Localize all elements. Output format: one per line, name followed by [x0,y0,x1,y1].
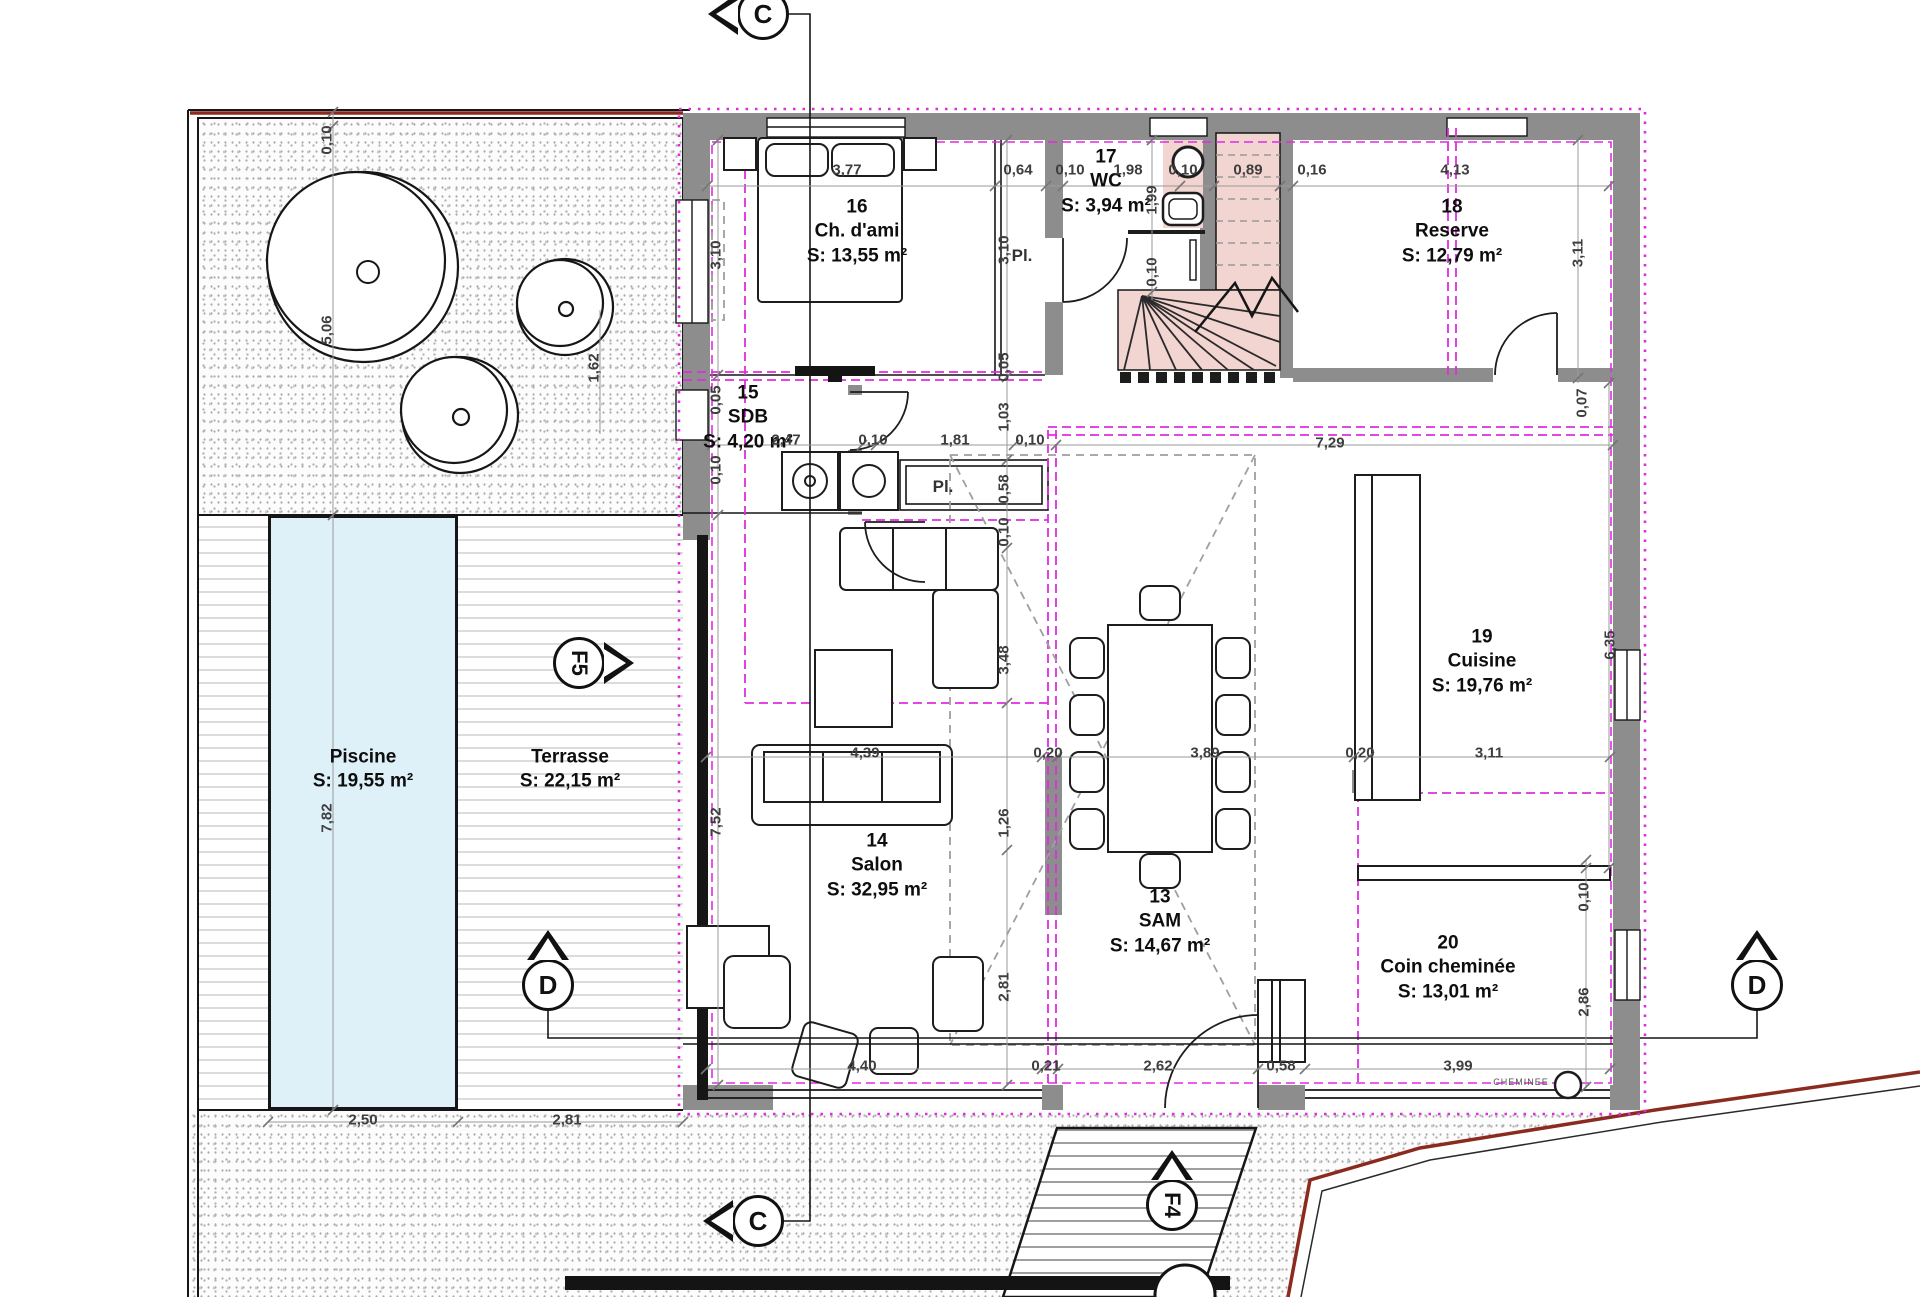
dimension-label-47: 2,81 [552,1112,581,1129]
dimension-label-14: 5,06 [319,315,336,344]
section-marker-d-3: D [1731,959,1783,1011]
dimension-label-21: 3,48 [996,645,1013,674]
marker-triangle-icon [1743,938,1771,960]
dimension-label-37: 0,20 [1345,745,1374,762]
dimension-label-9: 0,05 [708,385,725,414]
section-marker-f5-4: F5 [553,637,605,689]
dimension-label-22: 1,26 [996,808,1013,837]
dimension-label-13: 0,10 [319,125,336,154]
dimension-label-16: 3,10 [996,235,1013,264]
annotation-pl-1: Pl. [933,477,954,497]
dimension-label-34: 4,39 [850,745,879,762]
dimension-label-19: 0,58 [996,474,1013,503]
dimension-label-6: 0,16 [1297,162,1326,179]
dimension-label-31: 3,11 [1570,239,1587,267]
dimension-label-3: 1,98 [1113,162,1142,179]
annotation-cheminee-2: CHEMINEE [1493,1077,1549,1087]
dimension-label-4: 0,10 [1168,162,1197,179]
dimension-label-12: 7,52 [708,807,725,836]
room-label-reserve: 18ReserveS: 12,79 m² [1402,196,1502,269]
marker-triangle-icon [711,1207,733,1235]
dimension-label-29: 0,10 [1015,432,1044,449]
dimension-label-10: 0,10 [708,455,725,484]
dimension-label-40: 2,86 [1576,987,1593,1016]
annotation-pl-0: Pl. [1012,246,1033,266]
dimension-label-5: 0,89 [1233,162,1262,179]
dimension-label-17: 0,05 [996,352,1013,381]
dimension-label-42: 0,21 [1031,1058,1060,1075]
dimension-label-24: 1,99 [1144,185,1161,214]
dimension-label-28: 1,81 [940,432,969,449]
dimension-label-36: 3,89 [1190,745,1219,762]
dimension-label-44: 0,58 [1266,1058,1295,1075]
dimension-label-26: 2,47 [771,432,800,449]
room-label-coin-chemin-e: 20Coin cheminéeS: 13,01 m² [1380,932,1515,1005]
dimension-label-23: 2,81 [996,972,1013,1001]
dimension-label-25: 0,10 [1144,257,1161,286]
section-marker-d-2: D [522,959,574,1011]
dimension-label-0: 3,77 [832,162,861,179]
marker-triangle-icon [534,938,562,960]
labels-layer: 13SAMS: 14,67 m²14SalonS: 32,95 m²15SDBS… [0,0,1920,1297]
room-label-terrasse: TerrasseS: 22,15 m² [520,746,620,795]
dimension-label-2: 0,10 [1055,162,1084,179]
dimension-label-32: 0,07 [1574,388,1591,417]
dimension-label-27: 0,10 [858,432,887,449]
marker-triangle-icon [716,0,738,28]
dimension-label-43: 2,62 [1143,1058,1172,1075]
dimension-label-1: 0,64 [1003,162,1032,179]
floor-plan-canvas: 13SAMS: 14,67 m²14SalonS: 32,95 m²15SDBS… [0,0,1920,1297]
room-label-ch-d-ami: 16Ch. d'amiS: 13,55 m² [807,196,907,269]
section-marker-f4-5: F4 [1146,1179,1198,1231]
dimension-label-18: 1,03 [996,402,1013,431]
section-marker-c-0: C [737,0,789,40]
section-marker-c-1: C [732,1195,784,1247]
dimension-label-33: 6,35 [1602,630,1619,659]
dimension-label-30: 7,29 [1315,435,1344,452]
room-label-sam: 13SAMS: 14,67 m² [1110,886,1210,959]
dimension-label-8: 3,10 [708,240,725,269]
dimension-label-41: 4,40 [847,1058,876,1075]
dimension-label-35: 0,20 [1033,745,1062,762]
marker-triangle-icon [1158,1158,1186,1180]
room-label-wc: 17WCS: 3,94 m² [1061,146,1151,219]
room-label-piscine: PiscineS: 19,55 m² [313,746,413,795]
dimension-label-15: 7,82 [319,803,336,832]
dimension-label-39: 0,10 [1576,882,1593,911]
room-label-salon: 14SalonS: 32,95 m² [827,830,927,903]
dimension-label-38: 3,11 [1475,745,1503,762]
dimension-label-7: 4,13 [1440,162,1469,179]
dimension-label-45: 3,99 [1443,1058,1472,1075]
dimension-label-20: 0,10 [996,517,1013,546]
room-label-cuisine: 19CuisineS: 19,76 m² [1432,626,1532,699]
dimension-label-46: 2,50 [348,1112,377,1129]
dimension-label-11: 1,62 [586,353,603,382]
marker-triangle-icon [604,649,626,677]
